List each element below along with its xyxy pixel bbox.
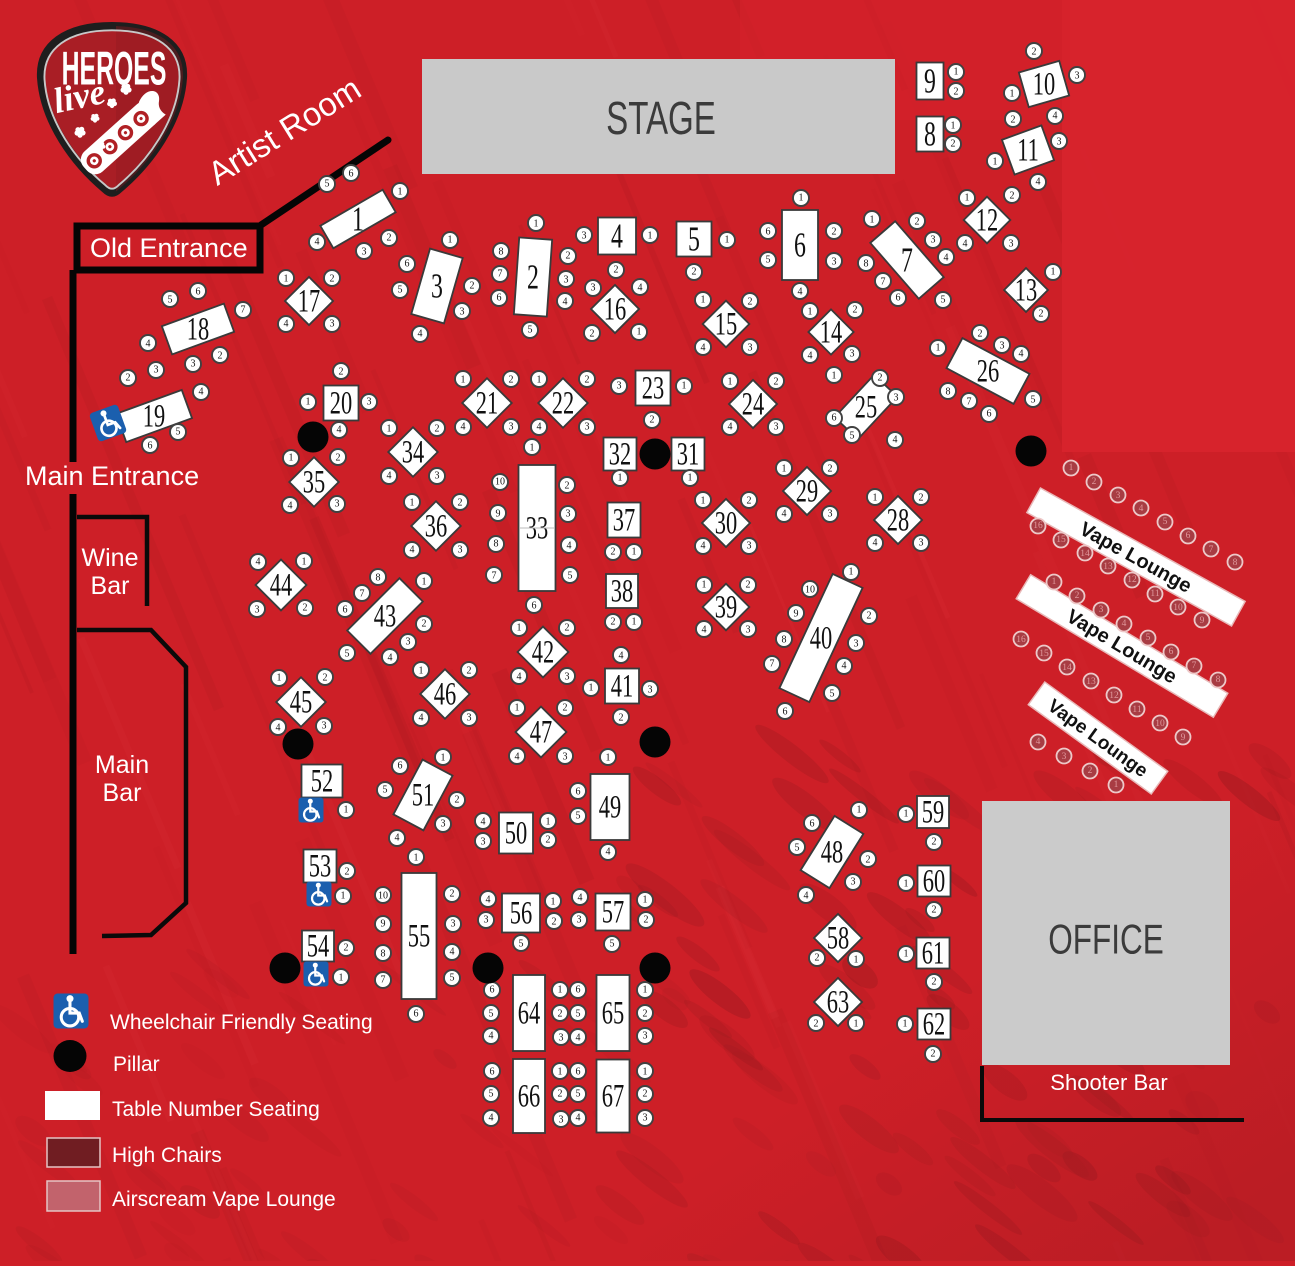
- svg-text:1: 1: [854, 955, 859, 966]
- svg-text:1: 1: [854, 1019, 859, 1030]
- svg-text:3: 3: [559, 1115, 564, 1126]
- svg-text:31: 31: [677, 436, 699, 472]
- svg-text:10: 10: [1033, 66, 1055, 102]
- svg-text:65: 65: [602, 995, 624, 1031]
- svg-text:Airscream Vape Lounge: Airscream Vape Lounge: [112, 1188, 336, 1211]
- svg-text:1: 1: [993, 157, 998, 168]
- svg-text:1: 1: [284, 274, 289, 285]
- svg-text:4: 4: [537, 422, 542, 433]
- svg-text:1: 1: [398, 187, 403, 198]
- svg-text:15: 15: [1056, 535, 1066, 545]
- svg-text:2: 2: [590, 329, 595, 340]
- svg-text:5: 5: [576, 1089, 581, 1100]
- svg-text:2: 2: [692, 267, 697, 278]
- svg-text:4: 4: [461, 422, 466, 433]
- svg-text:9: 9: [1181, 733, 1186, 743]
- svg-text:10: 10: [495, 477, 505, 488]
- svg-text:2: 2: [565, 481, 570, 492]
- svg-text:5: 5: [688, 220, 700, 259]
- svg-text:2: 2: [867, 611, 872, 622]
- svg-text:4: 4: [450, 947, 455, 958]
- svg-text:Old Entrance: Old Entrance: [90, 233, 248, 263]
- svg-text:1: 1: [387, 424, 392, 435]
- svg-text:1: 1: [344, 805, 349, 816]
- svg-text:4: 4: [576, 1113, 581, 1124]
- svg-text:Shooter Bar: Shooter Bar: [1050, 1070, 1167, 1095]
- svg-text:5: 5: [830, 689, 835, 700]
- svg-text:1: 1: [530, 443, 535, 454]
- svg-text:6: 6: [196, 287, 201, 298]
- svg-text:20: 20: [330, 385, 352, 421]
- svg-text:2: 2: [611, 617, 616, 628]
- svg-text:3: 3: [481, 837, 486, 848]
- svg-text:3: 3: [451, 919, 456, 930]
- svg-text:5: 5: [528, 325, 533, 336]
- svg-text:64: 64: [518, 995, 540, 1031]
- svg-text:5: 5: [325, 179, 330, 190]
- svg-text:3: 3: [894, 393, 899, 404]
- svg-text:4: 4: [701, 541, 706, 552]
- svg-text:4: 4: [199, 387, 204, 398]
- svg-text:4: 4: [619, 651, 624, 662]
- svg-text:12: 12: [1127, 575, 1137, 585]
- svg-text:11: 11: [1017, 132, 1039, 168]
- svg-text:4: 4: [798, 287, 803, 298]
- svg-text:4: 4: [808, 351, 813, 362]
- svg-text:7: 7: [381, 975, 386, 986]
- svg-text:2: 2: [1039, 309, 1044, 320]
- svg-text:12: 12: [976, 202, 998, 238]
- svg-text:2: 2: [931, 1049, 936, 1060]
- svg-text:4: 4: [893, 435, 898, 446]
- svg-text:2: 2: [746, 580, 751, 591]
- svg-text:4: 4: [515, 752, 520, 763]
- svg-text:8: 8: [494, 539, 499, 550]
- svg-text:6: 6: [343, 605, 348, 616]
- svg-text:1: 1: [289, 453, 294, 464]
- svg-text:3: 3: [509, 422, 514, 433]
- svg-text:1: 1: [870, 215, 875, 226]
- svg-text:1: 1: [637, 327, 642, 338]
- svg-text:1: 1: [936, 343, 941, 354]
- svg-text:3: 3: [565, 672, 570, 683]
- svg-text:57: 57: [602, 894, 624, 930]
- svg-text:6: 6: [1186, 531, 1191, 541]
- svg-text:2: 2: [527, 258, 539, 297]
- svg-text:1: 1: [419, 666, 424, 677]
- svg-text:7: 7: [1209, 545, 1214, 555]
- svg-text:3: 3: [367, 397, 372, 408]
- svg-text:4: 4: [842, 661, 847, 672]
- svg-text:42: 42: [532, 634, 554, 670]
- svg-text:3: 3: [322, 721, 327, 732]
- svg-text:1: 1: [410, 498, 415, 509]
- svg-text:8: 8: [499, 247, 504, 258]
- svg-text:3: 3: [467, 713, 472, 724]
- svg-text:OFFICE: OFFICE: [1048, 915, 1163, 963]
- svg-text:1: 1: [534, 219, 539, 230]
- svg-text:66: 66: [518, 1078, 540, 1114]
- svg-text:1: 1: [904, 879, 909, 890]
- svg-text:2: 2: [832, 227, 837, 238]
- svg-text:3: 3: [617, 381, 622, 392]
- svg-text:3: 3: [559, 1033, 564, 1044]
- svg-text:8: 8: [376, 573, 381, 584]
- svg-text:6: 6: [794, 226, 806, 265]
- svg-text:2: 2: [303, 603, 308, 614]
- svg-text:2: 2: [748, 297, 753, 308]
- svg-text:7: 7: [360, 589, 365, 600]
- svg-text:22: 22: [552, 385, 574, 421]
- svg-text:4: 4: [804, 891, 809, 902]
- svg-text:2: 2: [650, 415, 655, 426]
- svg-text:5: 5: [450, 973, 455, 984]
- svg-text:2: 2: [336, 453, 341, 464]
- svg-text:3: 3: [335, 499, 340, 510]
- svg-text:4: 4: [256, 557, 261, 568]
- svg-text:Main: Main: [95, 751, 149, 779]
- svg-text:2: 2: [566, 251, 571, 262]
- svg-text:7: 7: [901, 241, 913, 280]
- svg-text:61: 61: [922, 935, 944, 971]
- svg-text:4: 4: [1036, 177, 1041, 188]
- svg-text:1: 1: [904, 949, 909, 960]
- svg-text:1: 1: [302, 557, 307, 568]
- svg-text:51: 51: [412, 777, 434, 813]
- svg-text:55: 55: [408, 918, 430, 954]
- svg-text:52: 52: [311, 763, 333, 799]
- svg-text:2: 2: [126, 373, 131, 384]
- svg-text:9: 9: [381, 919, 386, 930]
- svg-text:2: 2: [323, 673, 328, 684]
- svg-text:4: 4: [944, 253, 949, 264]
- svg-text:49: 49: [599, 789, 621, 825]
- svg-text:1: 1: [808, 307, 813, 318]
- svg-text:4: 4: [1139, 504, 1144, 514]
- svg-text:2: 2: [467, 666, 472, 677]
- svg-text:5: 5: [398, 285, 403, 296]
- svg-text:2: 2: [1088, 766, 1093, 776]
- svg-text:3: 3: [577, 915, 582, 926]
- svg-text:19: 19: [143, 398, 165, 434]
- svg-text:Wine: Wine: [82, 544, 139, 572]
- svg-text:26: 26: [977, 353, 999, 389]
- svg-text:24: 24: [742, 386, 764, 422]
- svg-text:5: 5: [176, 427, 181, 438]
- svg-text:4: 4: [606, 847, 611, 858]
- svg-text:6: 6: [148, 441, 153, 452]
- svg-text:1: 1: [277, 673, 282, 684]
- svg-text:2: 2: [422, 619, 427, 630]
- svg-text:2: 2: [866, 855, 871, 866]
- svg-text:9: 9: [924, 62, 936, 101]
- svg-text:2: 2: [814, 1019, 819, 1030]
- svg-text:6: 6: [414, 1009, 419, 1020]
- svg-text:4: 4: [1019, 349, 1024, 360]
- svg-text:4: 4: [728, 422, 733, 433]
- svg-text:3: 3: [1075, 71, 1080, 82]
- svg-text:3: 3: [1062, 752, 1067, 762]
- svg-text:58: 58: [827, 920, 849, 956]
- svg-text:14: 14: [1080, 549, 1090, 559]
- svg-text:2: 2: [546, 835, 551, 846]
- svg-text:2: 2: [1075, 591, 1080, 601]
- svg-text:2: 2: [828, 464, 833, 475]
- svg-text:2: 2: [954, 87, 959, 98]
- svg-text:1: 1: [537, 375, 542, 386]
- svg-text:6: 6: [497, 293, 502, 304]
- svg-text:47: 47: [530, 714, 552, 750]
- svg-text:11: 11: [1132, 705, 1141, 715]
- svg-text:2: 2: [563, 703, 568, 714]
- svg-text:2: 2: [1011, 115, 1016, 126]
- svg-text:7: 7: [241, 305, 246, 316]
- svg-text:9: 9: [794, 609, 799, 620]
- svg-text:3: 3: [850, 349, 855, 360]
- svg-text:5: 5: [576, 1009, 581, 1020]
- svg-text:28: 28: [887, 502, 909, 538]
- svg-text:1: 1: [701, 496, 706, 507]
- svg-text:6: 6: [490, 985, 495, 996]
- svg-text:6: 6: [349, 169, 354, 180]
- svg-text:4: 4: [410, 545, 415, 556]
- svg-text:Bar: Bar: [91, 572, 130, 600]
- svg-text:5: 5: [489, 1089, 494, 1100]
- svg-text:41: 41: [611, 668, 633, 704]
- svg-text:2: 2: [1032, 47, 1037, 58]
- svg-text:2: 2: [558, 1009, 563, 1020]
- svg-text:3: 3: [648, 685, 653, 696]
- svg-text:2: 2: [978, 329, 983, 340]
- svg-text:3: 3: [1057, 137, 1062, 148]
- svg-text:10: 10: [1155, 719, 1165, 729]
- svg-text:3: 3: [566, 509, 571, 520]
- svg-text:29: 29: [796, 473, 818, 509]
- svg-text:14: 14: [820, 314, 842, 350]
- svg-text:3: 3: [832, 257, 837, 268]
- svg-text:1: 1: [643, 1067, 648, 1078]
- svg-text:4: 4: [567, 541, 572, 552]
- svg-text:35: 35: [303, 464, 325, 500]
- svg-text:5: 5: [568, 571, 573, 582]
- svg-text:3: 3: [748, 343, 753, 354]
- svg-text:13: 13: [1086, 677, 1096, 687]
- svg-text:3: 3: [747, 541, 752, 552]
- svg-text:2: 2: [932, 837, 937, 848]
- svg-text:1: 1: [682, 381, 687, 392]
- svg-text:5: 5: [850, 431, 855, 442]
- svg-text:1: 1: [857, 805, 862, 816]
- svg-text:7: 7: [492, 571, 497, 582]
- svg-text:3: 3: [919, 538, 924, 549]
- svg-text:8: 8: [924, 115, 936, 154]
- svg-text:3: 3: [1099, 605, 1104, 615]
- svg-text:4: 4: [576, 1033, 581, 1044]
- svg-text:1: 1: [517, 623, 522, 634]
- svg-text:4: 4: [1122, 619, 1127, 629]
- svg-text:1: 1: [688, 473, 693, 484]
- svg-text:50: 50: [505, 815, 527, 851]
- svg-text:2: 2: [435, 424, 440, 435]
- svg-text:1: 1: [306, 397, 311, 408]
- svg-text:1: 1: [339, 973, 344, 984]
- svg-text:3: 3: [828, 509, 833, 520]
- svg-text:4: 4: [563, 297, 568, 308]
- svg-text:8: 8: [1233, 558, 1238, 568]
- svg-text:62: 62: [923, 1006, 945, 1042]
- svg-text:4: 4: [638, 283, 643, 294]
- svg-text:3: 3: [154, 365, 159, 376]
- svg-text:2: 2: [458, 498, 463, 509]
- svg-text:2: 2: [450, 889, 455, 900]
- svg-text:3: 3: [1116, 491, 1121, 501]
- svg-text:60: 60: [923, 863, 945, 899]
- svg-text:1: 1: [849, 567, 854, 578]
- svg-text:4: 4: [388, 653, 393, 664]
- svg-text:Pillar: Pillar: [113, 1053, 160, 1076]
- svg-text:15: 15: [1039, 649, 1049, 659]
- svg-text:6: 6: [576, 787, 581, 798]
- svg-text:3: 3: [643, 1031, 648, 1042]
- svg-text:1: 1: [461, 375, 466, 386]
- svg-text:2: 2: [619, 713, 624, 724]
- svg-text:3: 3: [191, 359, 196, 370]
- svg-text:4: 4: [701, 343, 706, 354]
- svg-text:3: 3: [330, 319, 335, 330]
- svg-text:High Chairs: High Chairs: [112, 1144, 222, 1167]
- svg-text:13: 13: [1103, 562, 1113, 572]
- svg-text:4: 4: [873, 538, 878, 549]
- svg-text:4: 4: [288, 501, 293, 512]
- svg-text:3: 3: [931, 235, 936, 246]
- svg-text:2: 2: [344, 943, 349, 954]
- svg-text:5: 5: [489, 1009, 494, 1020]
- svg-text:54: 54: [307, 928, 329, 964]
- svg-text:7: 7: [770, 659, 775, 670]
- svg-text:4: 4: [146, 339, 151, 350]
- svg-text:2: 2: [932, 905, 937, 916]
- svg-text:5: 5: [766, 255, 771, 266]
- svg-text:1: 1: [702, 580, 707, 591]
- svg-text:16: 16: [604, 291, 626, 327]
- svg-text:2: 2: [878, 373, 883, 384]
- svg-text:5: 5: [795, 843, 800, 854]
- svg-text:9: 9: [1200, 616, 1205, 626]
- svg-text:11: 11: [1150, 589, 1159, 599]
- svg-text:3: 3: [854, 639, 859, 650]
- svg-text:44: 44: [270, 567, 292, 603]
- svg-text:2: 2: [1092, 477, 1097, 487]
- svg-text:2: 2: [387, 233, 392, 244]
- svg-text:8: 8: [864, 259, 869, 270]
- svg-text:2: 2: [611, 547, 616, 558]
- svg-text:3: 3: [435, 471, 440, 482]
- svg-text:1: 1: [414, 853, 419, 864]
- svg-text:3: 3: [582, 231, 587, 242]
- svg-text:23: 23: [642, 370, 664, 406]
- svg-text:2: 2: [345, 867, 350, 878]
- svg-text:6: 6: [810, 819, 815, 830]
- svg-text:6: 6: [987, 409, 992, 420]
- svg-text:18: 18: [187, 311, 209, 347]
- svg-text:2: 2: [915, 217, 920, 228]
- svg-text:8: 8: [1216, 675, 1221, 685]
- svg-text:1: 1: [782, 464, 787, 475]
- svg-text:56: 56: [510, 895, 532, 931]
- svg-text:4: 4: [517, 672, 522, 683]
- svg-text:2: 2: [747, 496, 752, 507]
- svg-text:5: 5: [1031, 395, 1036, 406]
- svg-text:53: 53: [309, 848, 331, 884]
- svg-text:2: 2: [339, 367, 344, 378]
- svg-text:43: 43: [374, 598, 396, 634]
- svg-text:4: 4: [578, 893, 583, 904]
- svg-text:6: 6: [576, 985, 581, 996]
- svg-text:1: 1: [701, 295, 706, 306]
- svg-text:4: 4: [387, 471, 392, 482]
- svg-text:10: 10: [1173, 603, 1183, 613]
- svg-text:6: 6: [832, 413, 837, 424]
- svg-text:32: 32: [609, 436, 631, 472]
- svg-text:3: 3: [564, 275, 569, 286]
- svg-text:3: 3: [458, 545, 463, 556]
- svg-text:2: 2: [951, 139, 956, 150]
- svg-text:1: 1: [725, 235, 730, 246]
- svg-text:3: 3: [460, 307, 465, 318]
- svg-text:3: 3: [746, 625, 751, 636]
- svg-text:14: 14: [1062, 663, 1072, 673]
- svg-text:1: 1: [558, 985, 563, 996]
- svg-text:4: 4: [782, 509, 787, 520]
- svg-text:1: 1: [1051, 267, 1056, 278]
- svg-text:5: 5: [1163, 517, 1168, 527]
- svg-text:2: 2: [470, 281, 475, 292]
- svg-text:4: 4: [1036, 737, 1041, 747]
- svg-text:1: 1: [551, 897, 556, 908]
- svg-text:5: 5: [941, 295, 946, 306]
- svg-text:1: 1: [558, 1067, 563, 1078]
- svg-text:4: 4: [489, 1031, 494, 1042]
- svg-text:4: 4: [611, 217, 623, 256]
- svg-text:10: 10: [805, 585, 815, 596]
- svg-text:5: 5: [1146, 633, 1151, 643]
- svg-text:STAGE: STAGE: [606, 94, 716, 144]
- svg-text:3: 3: [774, 422, 779, 433]
- svg-text:1: 1: [965, 193, 970, 204]
- svg-text:1: 1: [1052, 577, 1057, 587]
- svg-text:21: 21: [476, 385, 498, 421]
- svg-text:1: 1: [422, 577, 427, 588]
- svg-text:1: 1: [632, 547, 637, 558]
- svg-text:2: 2: [585, 375, 590, 386]
- svg-text:15: 15: [715, 306, 737, 342]
- svg-text:5: 5: [345, 649, 350, 660]
- svg-text:67: 67: [602, 1078, 624, 1114]
- svg-text:1: 1: [799, 193, 804, 204]
- svg-text:3: 3: [1009, 239, 1014, 250]
- svg-text:5: 5: [168, 295, 173, 306]
- svg-text:36: 36: [425, 508, 447, 544]
- svg-text:2: 2: [853, 305, 858, 316]
- svg-text:2: 2: [614, 265, 619, 276]
- svg-text:6: 6: [405, 259, 410, 270]
- svg-text:1: 1: [904, 809, 909, 820]
- svg-text:3: 3: [441, 819, 446, 830]
- svg-text:2: 2: [330, 274, 335, 285]
- svg-text:2: 2: [565, 623, 570, 634]
- svg-text:5: 5: [610, 939, 615, 950]
- svg-text:3: 3: [643, 1113, 648, 1124]
